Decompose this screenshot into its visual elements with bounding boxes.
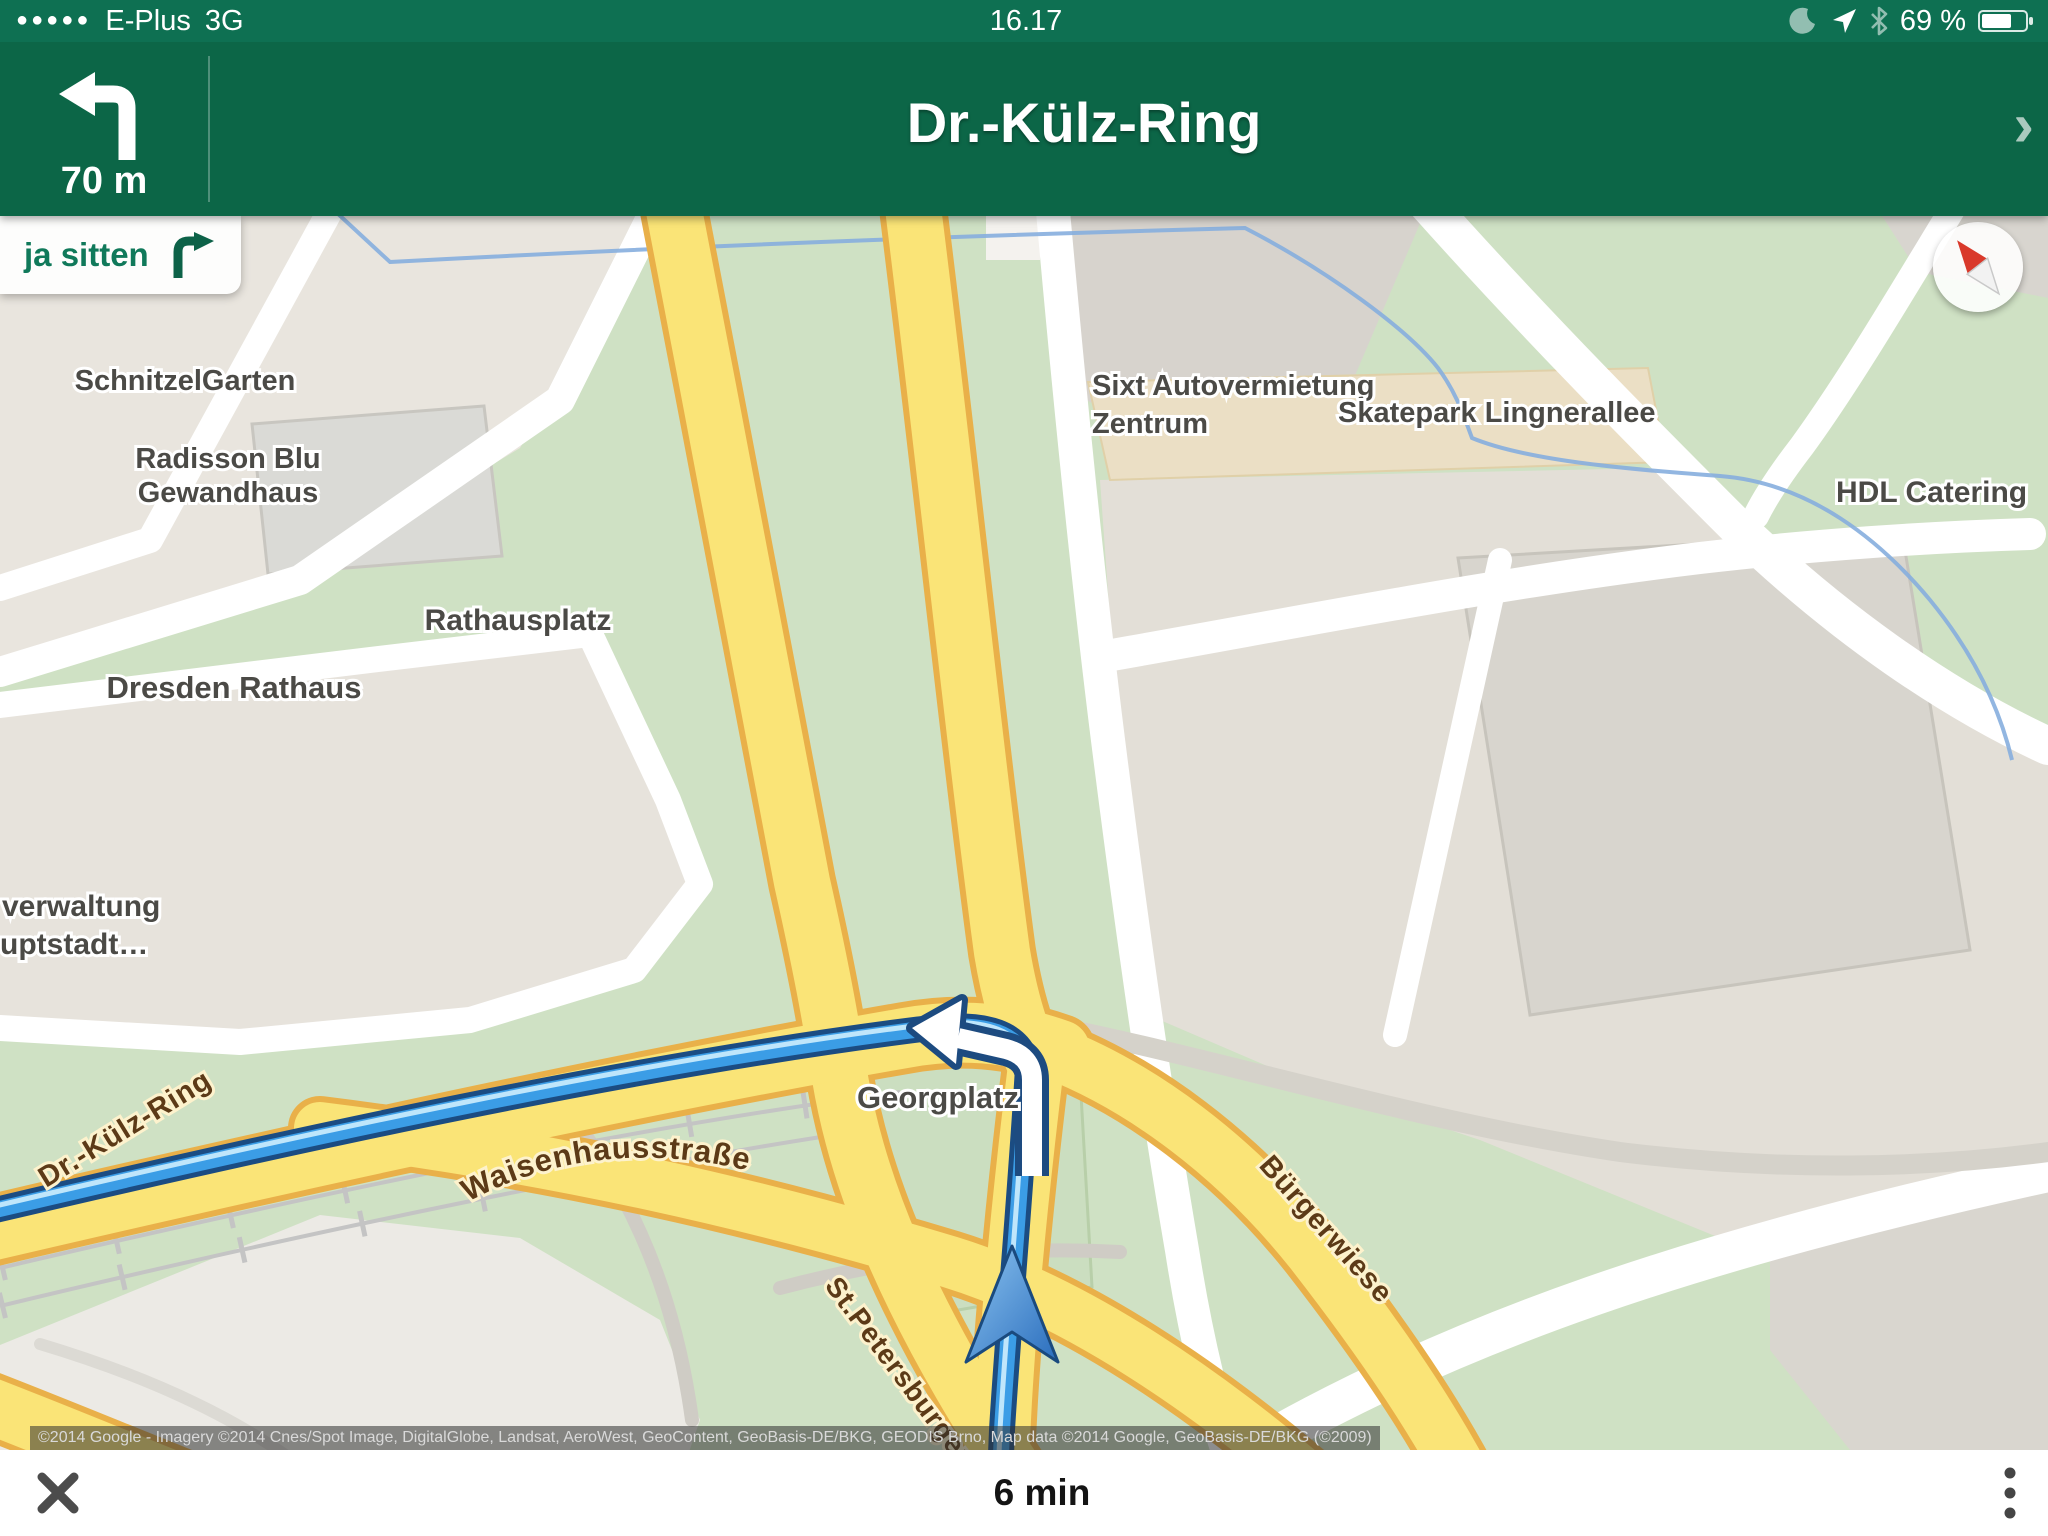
signal-strength-icon: ●●●●● xyxy=(16,9,91,32)
maneuver-panel: 70 m xyxy=(0,42,208,216)
status-bar: ●●●●● E-Plus 3G 16.17 69 % xyxy=(0,0,2048,42)
battery-percent-label: 69 % xyxy=(1900,5,1966,38)
label-verwaltung-1: verwaltung xyxy=(2,890,160,923)
network-type-label: 3G xyxy=(205,5,244,38)
building-large-right xyxy=(1458,532,1970,1015)
compass-button[interactable] xyxy=(1933,222,2023,312)
map-canvas: Dr.-Külz-Ring Waisenhausstraße St.Peters… xyxy=(0,0,2048,1536)
overflow-menu-button[interactable] xyxy=(2002,1461,2018,1525)
header-divider xyxy=(208,56,210,202)
chevron-right-icon[interactable]: › xyxy=(2013,90,2034,161)
label-schnitzelgarten: SchnitzelGarten xyxy=(75,365,296,397)
clock: 16.17 xyxy=(990,5,1063,38)
label-georgplatz: Georgplatz xyxy=(857,1080,1019,1115)
label-skatepark: Skatepark Lingnerallee xyxy=(1338,397,1656,429)
label-sixt-2: Zentrum xyxy=(1092,408,1208,440)
label-verwaltung-2: uptstadt… xyxy=(0,928,148,961)
map[interactable]: Dr.-Külz-Ring Waisenhausstraße St.Peters… xyxy=(0,0,2048,1450)
instruction-street-name: Dr.-Külz-Ring xyxy=(240,90,1928,155)
next-maneuver-label: ja sitten xyxy=(24,236,149,274)
navigation-header[interactable]: 70 m Dr.-Külz-Ring › xyxy=(0,42,2048,216)
eta-label: 6 min xyxy=(82,1472,2002,1514)
carrier-label: E-Plus xyxy=(105,5,190,38)
label-hdl-catering: HDL Catering xyxy=(1836,476,2027,509)
label-radisson-1: Radisson Blu xyxy=(135,443,320,475)
label-rathausplatz: Rathausplatz xyxy=(425,604,612,637)
do-not-disturb-moon-icon xyxy=(1788,6,1818,36)
maneuver-distance: 70 m xyxy=(0,160,208,203)
turn-left-icon xyxy=(49,56,159,166)
label-radisson-2: Gewandhaus xyxy=(138,477,319,509)
bluetooth-icon xyxy=(1870,6,1888,36)
navigation-screen: Dr.-Külz-Ring Waisenhausstraße St.Peters… xyxy=(0,0,2048,1536)
battery-icon xyxy=(1978,7,2036,35)
location-services-icon xyxy=(1830,7,1858,35)
turn-right-icon xyxy=(165,230,215,280)
map-copyright: ©2014 Google - Imagery ©2014 Cnes/Spot I… xyxy=(30,1426,1380,1450)
compass-needle xyxy=(1933,222,2023,312)
bottom-bar: 6 min xyxy=(0,1450,2048,1536)
label-dresden-rathaus: Dresden Rathaus xyxy=(107,670,362,705)
close-navigation-button[interactable] xyxy=(34,1469,82,1517)
next-maneuver-card[interactable]: ja sitten xyxy=(0,216,241,294)
label-sixt-1: Sixt Autovermietung xyxy=(1092,370,1375,402)
